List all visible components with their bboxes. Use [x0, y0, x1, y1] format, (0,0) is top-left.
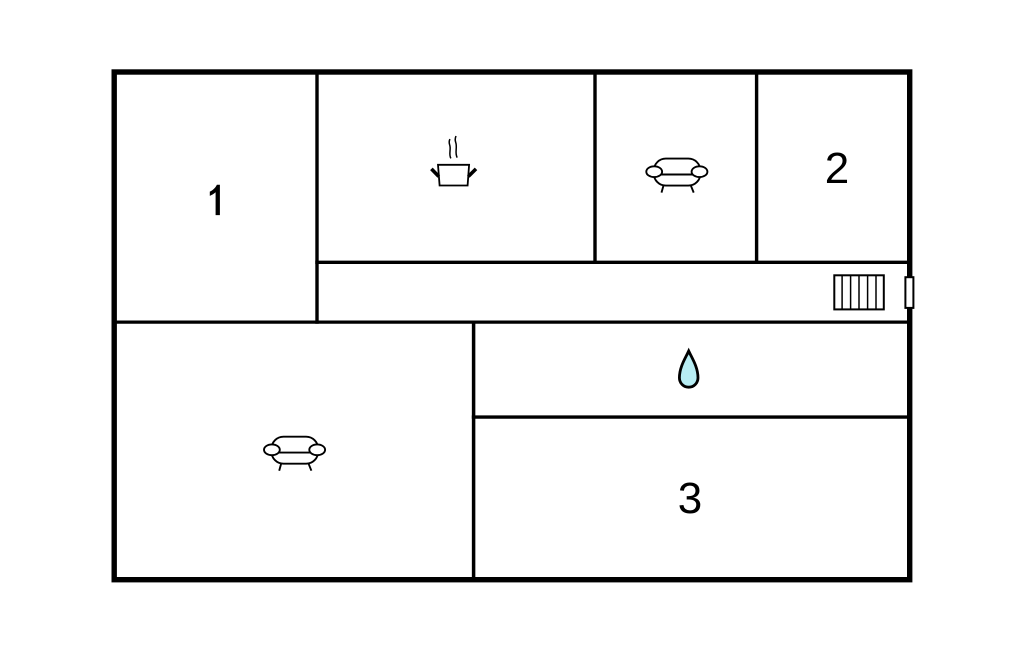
svg-text:3: 3 [678, 474, 702, 523]
svg-text:2: 2 [825, 144, 849, 193]
